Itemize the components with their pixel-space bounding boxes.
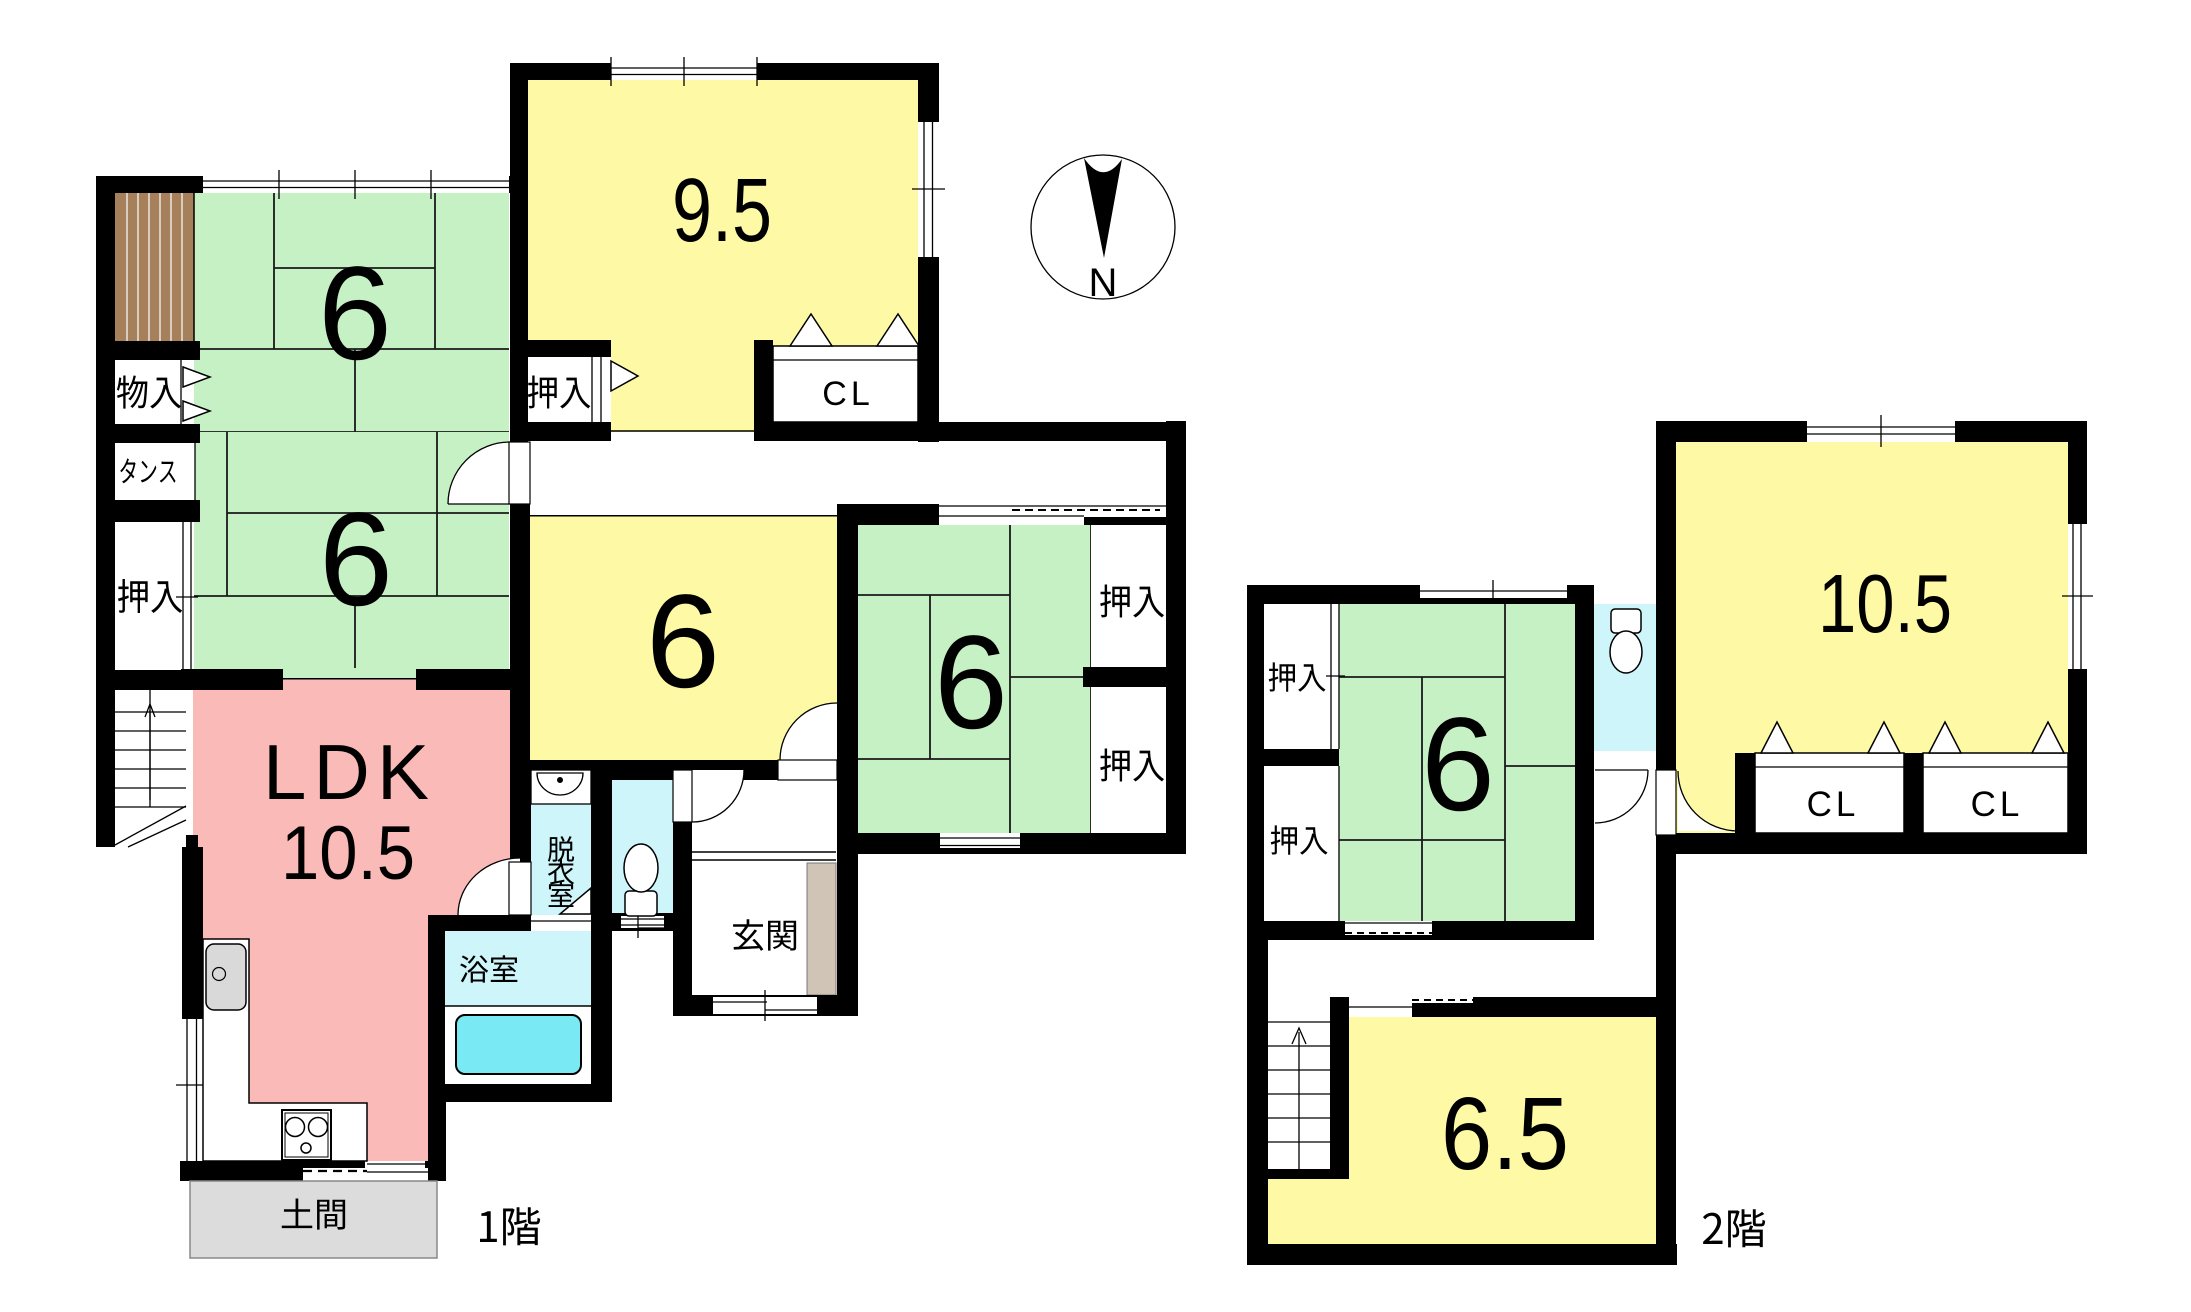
svg-text:6: 6 <box>318 240 392 388</box>
svg-text:6: 6 <box>934 609 1008 757</box>
svg-text:6: 6 <box>646 568 720 716</box>
svg-text:10.5: 10.5 <box>1818 557 1952 650</box>
svg-text:LDK: LDK <box>263 728 429 816</box>
svg-text:9.5: 9.5 <box>672 161 772 261</box>
svg-text:6: 6 <box>1421 691 1495 839</box>
svg-text:6.5: 6.5 <box>1441 1076 1569 1191</box>
svg-text:10.5: 10.5 <box>281 811 415 896</box>
svg-text:CL: CL <box>1971 785 2024 824</box>
svg-text:6: 6 <box>319 486 393 634</box>
svg-text:N: N <box>1089 261 1118 305</box>
svg-text:CL: CL <box>1807 785 1860 824</box>
svg-text:CL: CL <box>822 375 873 413</box>
